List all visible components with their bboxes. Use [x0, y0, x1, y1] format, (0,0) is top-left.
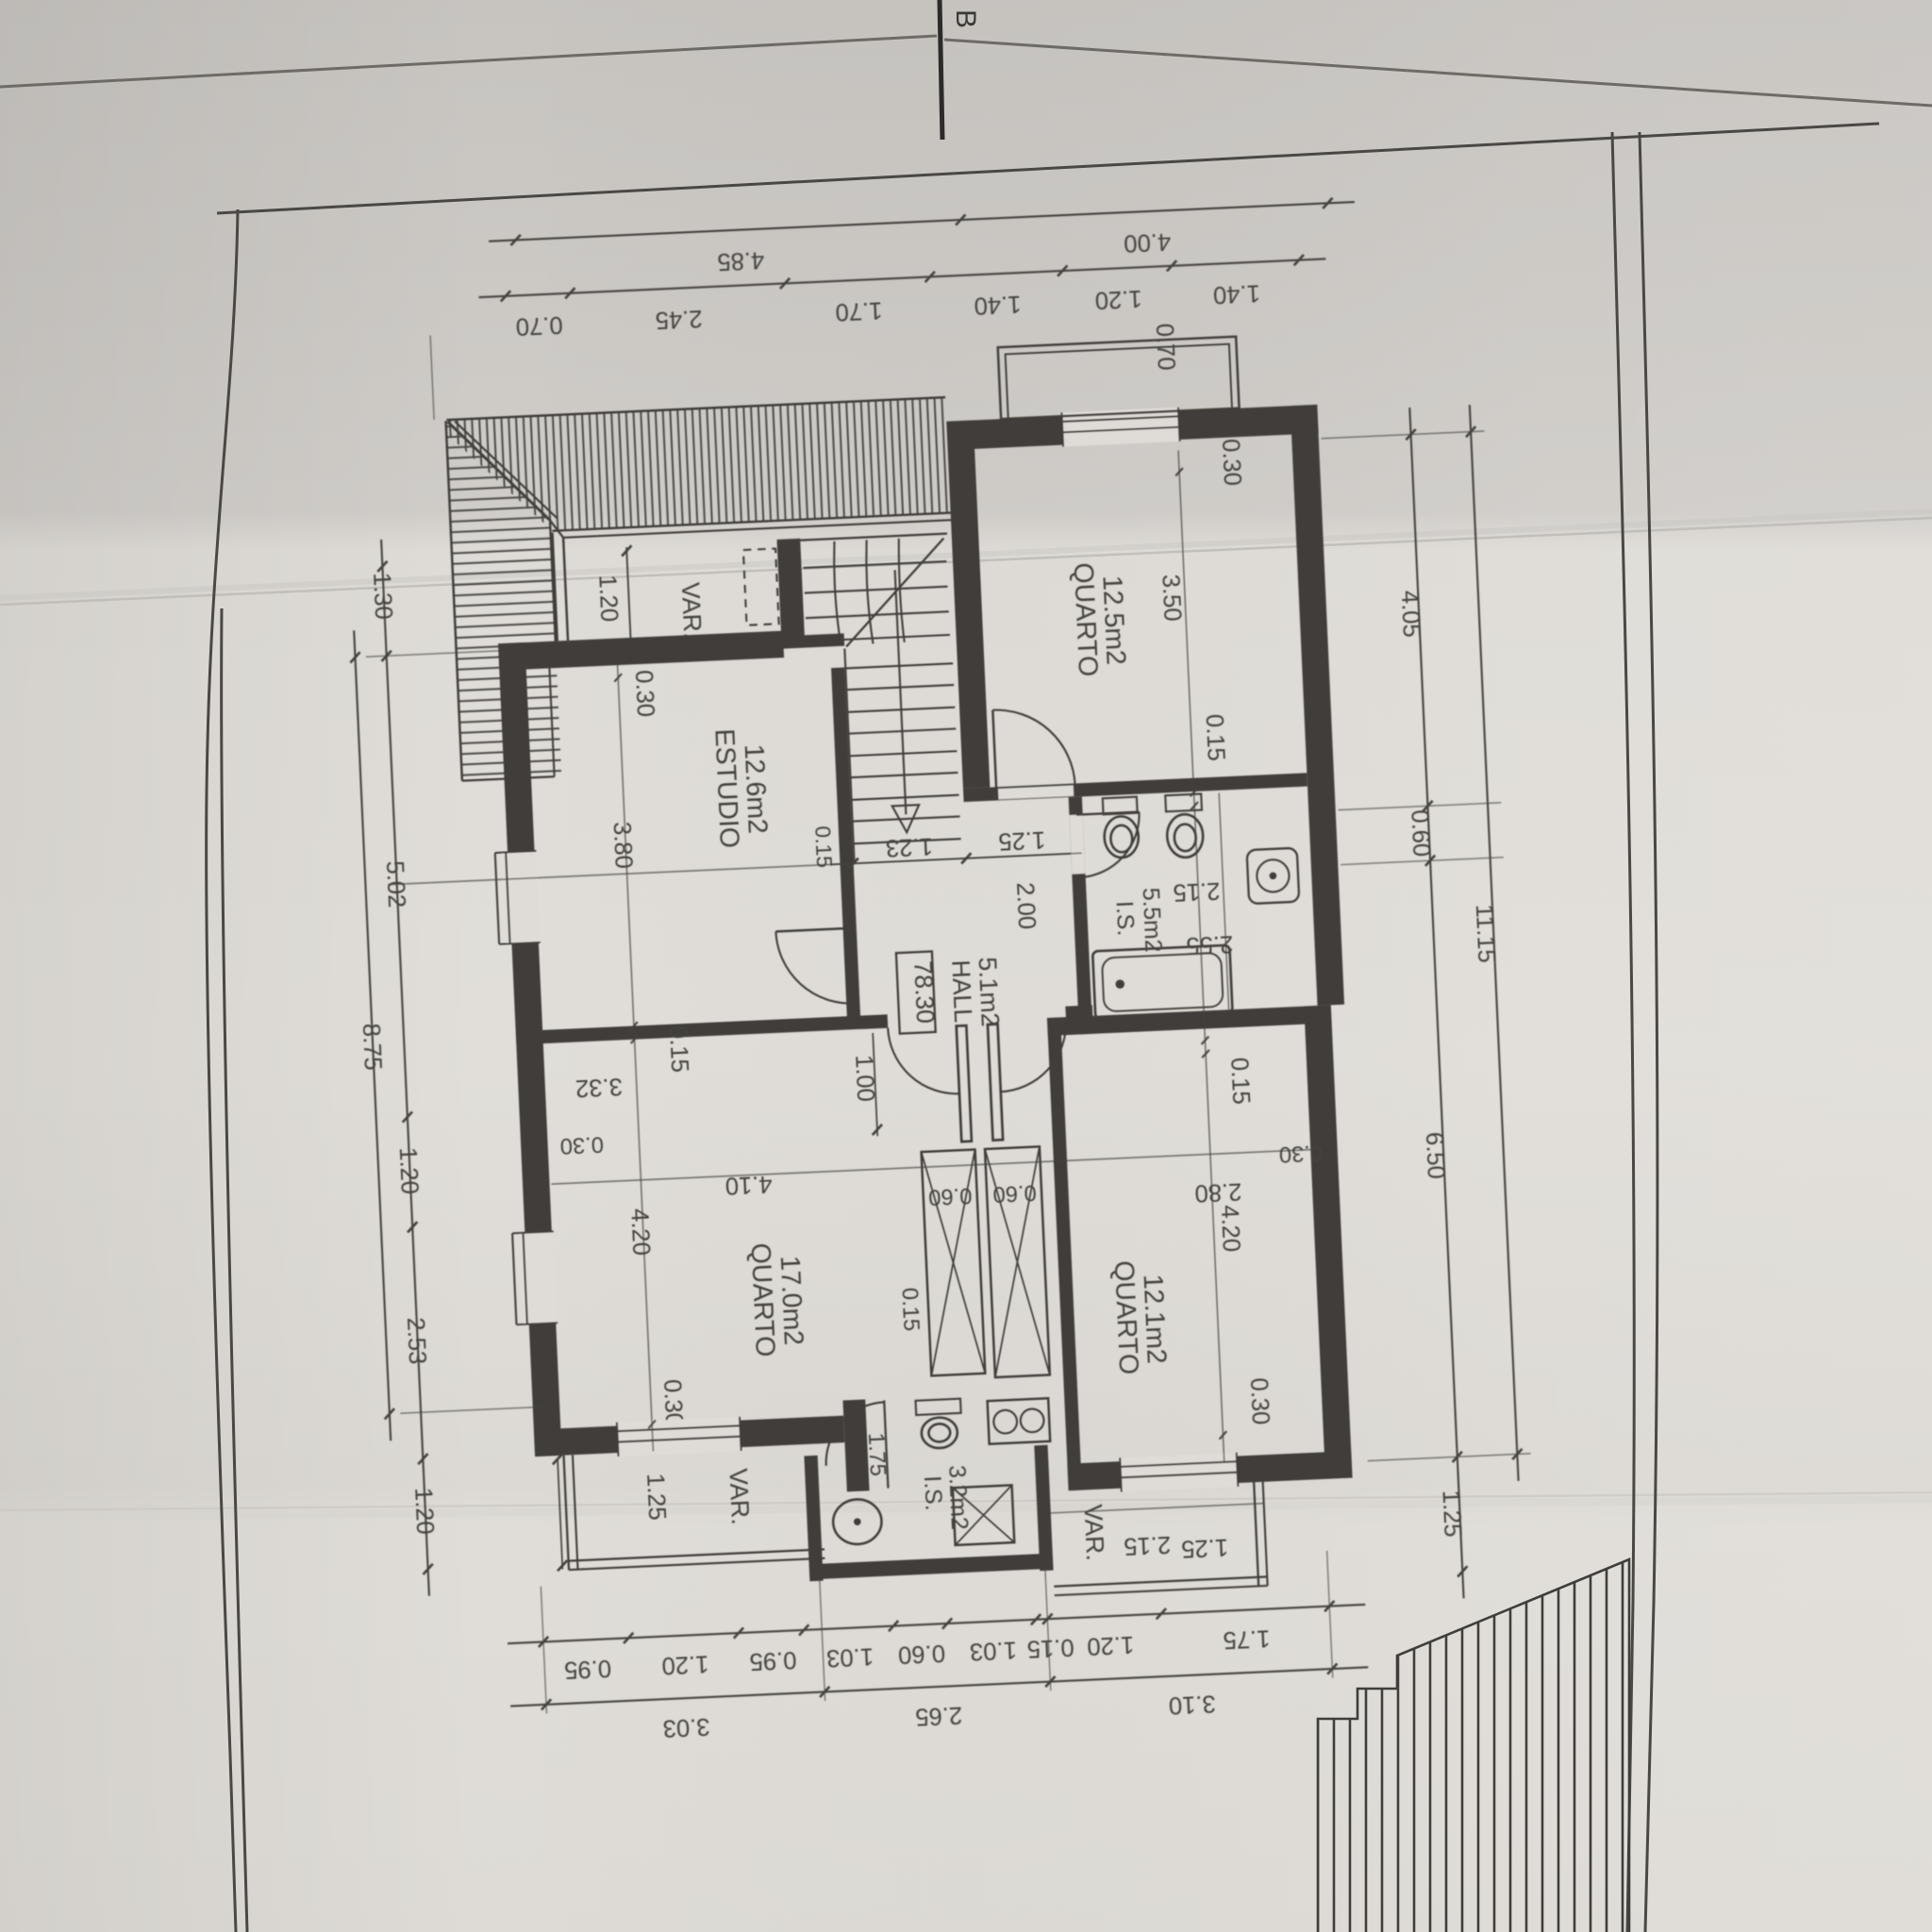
- svg-text:0.30: 0.30: [1278, 1140, 1323, 1167]
- svg-text:1.20: 1.20: [1087, 1631, 1135, 1659]
- svg-text:0.15: 0.15: [1225, 1057, 1254, 1105]
- svg-text:0.60: 0.60: [992, 1179, 1037, 1207]
- svg-text:4.05: 4.05: [1396, 590, 1424, 638]
- svg-text:0.60: 0.60: [1406, 809, 1434, 858]
- svg-text:5.1m2: 5.1m2: [974, 957, 1005, 1027]
- svg-text:1.70: 1.70: [835, 297, 883, 325]
- svg-text:0.15: 0.15: [664, 1024, 692, 1073]
- svg-text:1.20: 1.20: [661, 1650, 709, 1678]
- svg-text:2.45: 2.45: [655, 305, 703, 333]
- svg-text:B: B: [950, 9, 981, 28]
- svg-text:6.50: 6.50: [1421, 1131, 1449, 1179]
- svg-text:VAR.: VAR.: [1079, 1504, 1110, 1561]
- svg-text:0.60: 0.60: [928, 1183, 973, 1210]
- svg-text:4.20: 4.20: [625, 1207, 654, 1256]
- svg-text:4.85: 4.85: [717, 246, 765, 275]
- svg-text:11.15: 11.15: [1471, 904, 1500, 963]
- svg-text:0.60: 0.60: [897, 1640, 945, 1668]
- svg-text:I.S.: I.S.: [919, 1475, 946, 1511]
- svg-text:0.30: 0.30: [1245, 1377, 1274, 1425]
- svg-text:2.80: 2.80: [1194, 1177, 1242, 1206]
- svg-text:0.15: 0.15: [1026, 1634, 1074, 1662]
- svg-text:3.32: 3.32: [575, 1073, 623, 1101]
- svg-text:1.03: 1.03: [969, 1637, 1017, 1665]
- svg-text:1.75: 1.75: [1223, 1624, 1271, 1653]
- svg-text:1.03: 1.03: [825, 1642, 874, 1671]
- svg-text:2.65: 2.65: [915, 1702, 963, 1730]
- svg-text:0.15: 0.15: [810, 825, 837, 869]
- svg-text:4.00: 4.00: [1124, 228, 1172, 257]
- svg-text:5.5m2: 5.5m2: [1137, 887, 1165, 953]
- svg-text:0.95: 0.95: [749, 1646, 797, 1674]
- svg-text:3.2m2: 3.2m2: [943, 1464, 972, 1530]
- svg-text:1.25: 1.25: [1181, 1533, 1229, 1561]
- svg-text:2.15: 2.15: [1173, 877, 1221, 906]
- svg-text:1.25: 1.25: [998, 825, 1046, 854]
- svg-text:12.1m2: 12.1m2: [1138, 1274, 1172, 1364]
- svg-text:1.25: 1.25: [641, 1473, 670, 1521]
- svg-text:2.00: 2.00: [1011, 882, 1040, 930]
- svg-text:1.40: 1.40: [974, 291, 1022, 319]
- svg-text:12.5m2: 12.5m2: [1096, 575, 1130, 665]
- svg-text:1.20: 1.20: [409, 1487, 438, 1535]
- svg-text:0.15: 0.15: [897, 1287, 924, 1331]
- svg-text:0.30: 0.30: [1217, 439, 1245, 487]
- svg-text:17.0m2: 17.0m2: [774, 1255, 808, 1345]
- svg-text:1.20: 1.20: [394, 1146, 423, 1194]
- svg-text:0.15: 0.15: [1201, 713, 1229, 761]
- svg-text:5.02: 5.02: [381, 860, 409, 908]
- svg-text:1.20: 1.20: [1094, 285, 1142, 313]
- svg-text:3.10: 3.10: [1168, 1690, 1216, 1719]
- svg-text:1.23: 1.23: [885, 833, 933, 861]
- svg-text:1.25: 1.25: [1437, 1490, 1465, 1538]
- svg-text:0.70: 0.70: [1151, 323, 1179, 371]
- svg-text:1.30: 1.30: [368, 572, 396, 620]
- svg-text:0.30: 0.30: [559, 1131, 604, 1158]
- svg-text:1.00: 1.00: [850, 1054, 878, 1102]
- svg-text:1.20: 1.20: [593, 575, 622, 623]
- svg-text:4.20: 4.20: [1216, 1205, 1244, 1253]
- svg-text:1.40: 1.40: [1212, 279, 1260, 308]
- svg-text:VAR.: VAR.: [676, 582, 708, 640]
- svg-text:3.50: 3.50: [1157, 574, 1185, 622]
- svg-text:I.S.: I.S.: [1110, 900, 1138, 936]
- svg-text:3.03: 3.03: [662, 1713, 710, 1741]
- svg-text:HALL: HALL: [946, 959, 977, 1024]
- svg-text:2.53: 2.53: [402, 1317, 430, 1365]
- svg-text:12.6m2: 12.6m2: [739, 743, 773, 834]
- svg-text:VAR.: VAR.: [724, 1468, 755, 1525]
- svg-text:0.95: 0.95: [563, 1655, 611, 1683]
- svg-text:0.70: 0.70: [515, 311, 563, 340]
- svg-text:8.75: 8.75: [358, 1023, 386, 1071]
- svg-text:78.30: 78.30: [908, 960, 940, 1024]
- svg-text:3.80: 3.80: [608, 821, 637, 869]
- svg-text:2.15: 2.15: [1124, 1530, 1172, 1558]
- svg-text:0.30: 0.30: [630, 670, 658, 718]
